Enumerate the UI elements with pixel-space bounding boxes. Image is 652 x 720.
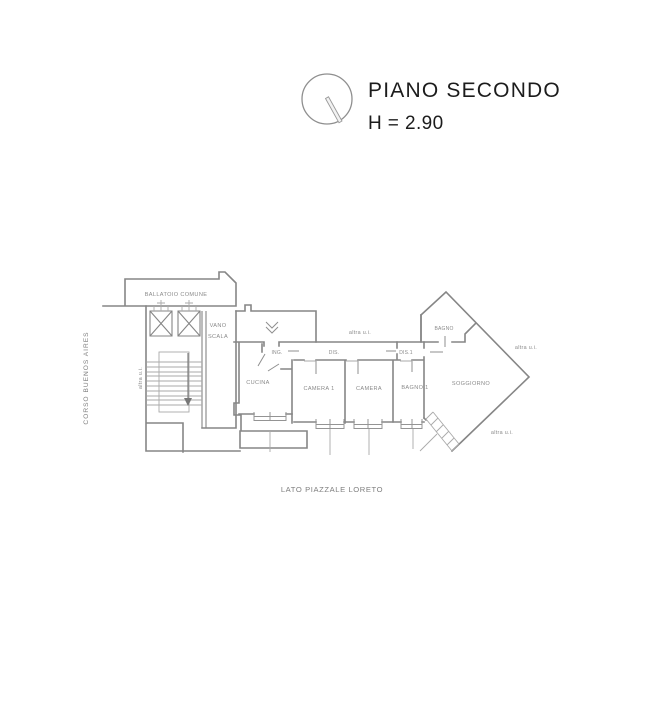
label-scala: SCALA [208,334,228,340]
room-label-camera: CAMERA [356,386,382,392]
soggiorno-diamond-walls [421,292,529,451]
entrance-arrow-icon [266,322,278,333]
title-block: PIANO SECONDO H = 2.90 [302,74,561,134]
annotation-altra-ui-right: altra u.i. [515,345,537,351]
label-ballatoio: BALLATOIO COMUNE [145,292,208,298]
hatched-balcony [420,412,459,451]
annotation-altra-ui-top: altra u.i. [349,330,371,336]
cucina-bay-walls [234,343,307,448]
label-vano: VANO [210,323,227,329]
stair-treads [147,362,202,405]
window-axis-marks [270,429,413,455]
elevator-shafts [150,311,200,336]
room-label-bagno1: BAGNO 1 [401,385,428,391]
room-label-ing: ING. [271,350,282,356]
floor-height: H = 2.90 [368,113,444,134]
street-label-bottom: LATO PIAZZALE LORETO [281,485,383,494]
floorplan-page: { "title": { "name": "PIANO SECONDO", "h… [0,0,652,720]
street-label-left: CORSO BUENOS AIRES [83,331,90,424]
page-title: PIANO SECONDO [368,79,561,102]
room-label-dis: DIS. [329,350,340,356]
stairwell-right-wall [202,311,206,428]
balcony-hatch-lines [420,412,459,451]
ballatoio-walls [103,272,316,342]
corridor-top-wall [234,315,421,346]
annotation-altra-ui-stairs: altra u.i. [138,367,144,389]
room-label-dis1: DIS.1 [399,350,413,356]
room-label-camera1: CAMERA 1 [303,386,334,392]
annotation-altra-ui-bottom: altra u.i. [491,430,513,436]
plan-labels: BALLATOIO COMUNE VANO SCALA CUCINA CAMER… [83,292,537,494]
north-needle-icon [326,97,343,123]
room-label-soggiorno: SOGGIORNO [452,381,491,387]
room-label-cucina: CUCINA [246,380,270,386]
room-label-bagno: BAGNO [434,326,453,332]
staircase [147,352,202,412]
stair-void [159,352,189,412]
floor-plan-drawing: PIANO SECONDO H = 2.90 [0,0,652,720]
